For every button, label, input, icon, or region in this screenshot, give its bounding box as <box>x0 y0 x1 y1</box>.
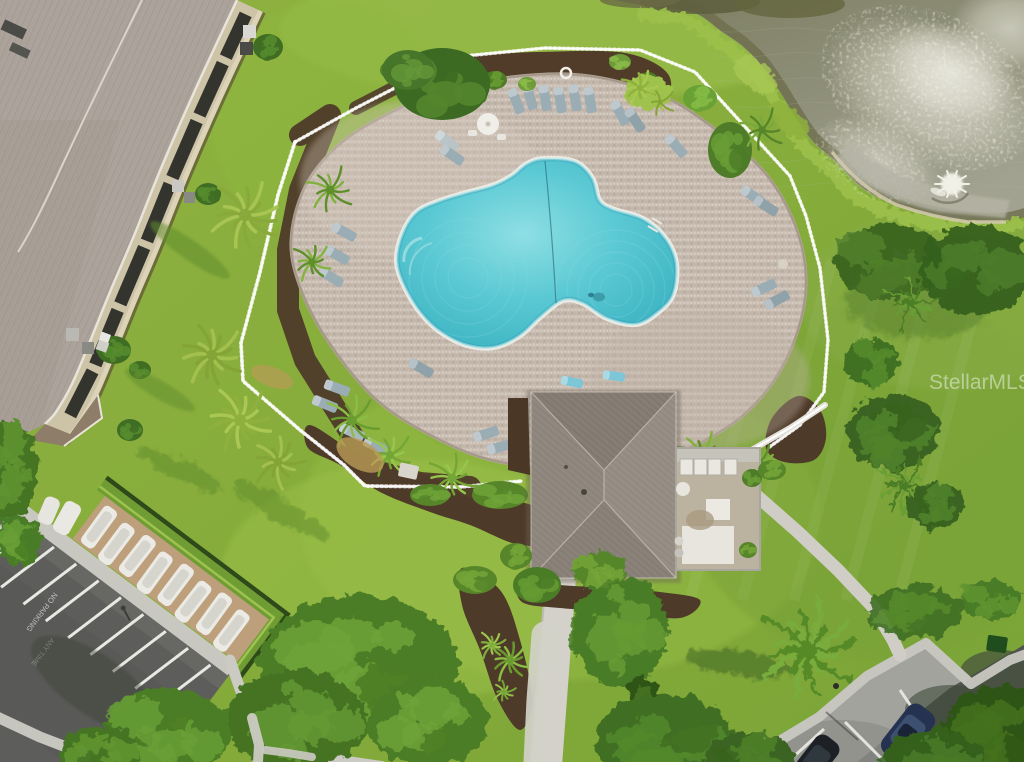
svg-text:StellarMLS: StellarMLS <box>929 371 1024 394</box>
